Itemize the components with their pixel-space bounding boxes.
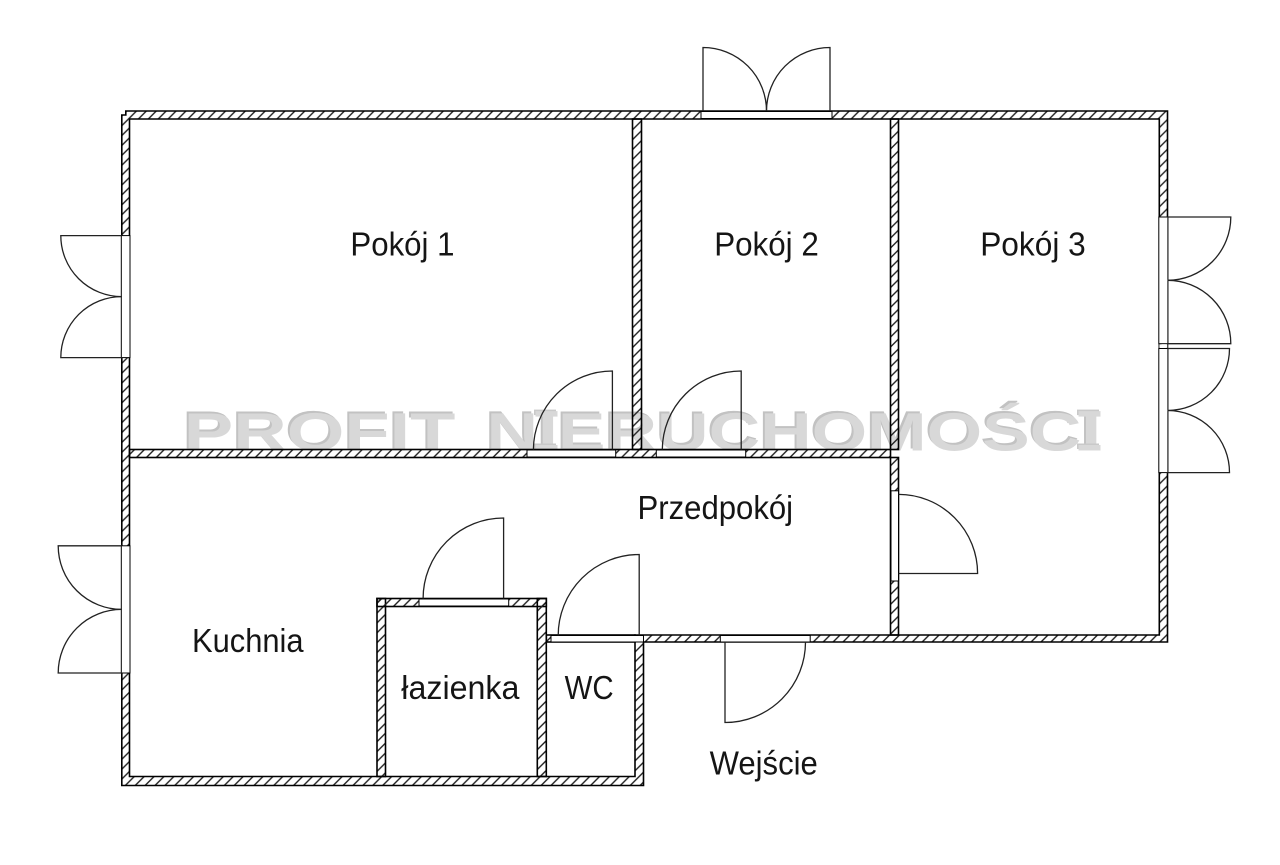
svg-text:Pokój 2: Pokój 2 [714,226,819,263]
svg-text:Przedpokój: Przedpokój [638,489,794,526]
svg-text:Kuchnia: Kuchnia [192,622,304,659]
svg-text:Wejście: Wejście [710,745,818,782]
svg-text:WC: WC [565,669,614,706]
svg-text:Pokój 3: Pokój 3 [980,226,1086,263]
svg-text:Pokój 1: Pokój 1 [350,226,454,263]
svg-text:łazienka: łazienka [401,669,520,706]
